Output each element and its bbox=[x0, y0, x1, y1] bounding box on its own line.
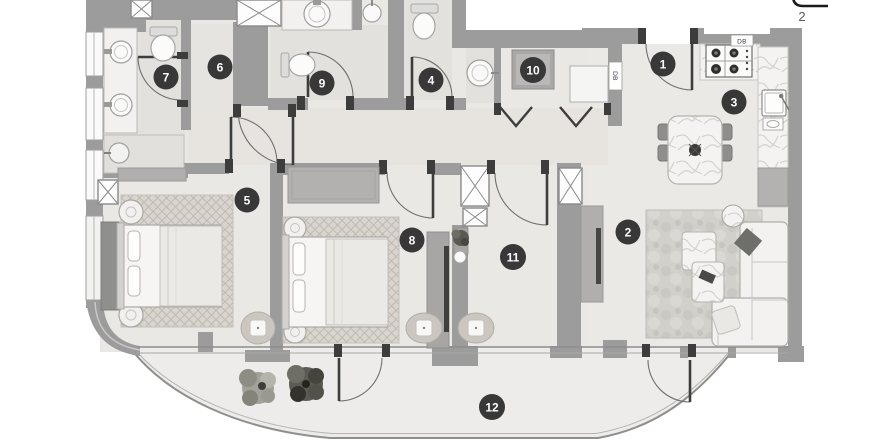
svg-text:1: 1 bbox=[660, 57, 667, 71]
room-badge-11: 11 bbox=[500, 244, 526, 270]
svg-text:3: 3 bbox=[731, 95, 738, 109]
room-badge-9: 9 bbox=[310, 71, 335, 96]
room-badge-7: 7 bbox=[154, 65, 179, 90]
db-label-hall: DB bbox=[611, 71, 618, 81]
kitchen-base-cabinet bbox=[758, 168, 788, 206]
pouf-icon bbox=[406, 313, 442, 343]
decor-bowl bbox=[454, 251, 466, 263]
svg-text:10: 10 bbox=[526, 63, 540, 77]
sink-icon bbox=[304, 0, 330, 27]
room-badge-6: 6 bbox=[208, 55, 233, 80]
toilet-icon bbox=[150, 27, 177, 61]
room-badge-12: 12 bbox=[479, 394, 505, 420]
svg-text:11: 11 bbox=[507, 250, 520, 264]
svg-text:5: 5 bbox=[244, 193, 251, 207]
left-wall-windows bbox=[86, 32, 103, 300]
column-icon bbox=[559, 168, 582, 204]
hall-cabinet bbox=[570, 66, 608, 102]
room-badge-8: 8 bbox=[400, 228, 425, 253]
dresser bbox=[118, 168, 186, 181]
bed-icon bbox=[117, 223, 222, 309]
corner-number: 2 bbox=[798, 9, 805, 24]
toilet-icon bbox=[281, 53, 315, 77]
column-icon bbox=[461, 166, 489, 226]
side-table-icon bbox=[722, 205, 744, 227]
svg-text:12: 12 bbox=[485, 400, 499, 414]
floor-plan-canvas: DB DB 1 2 3 4 5 6 7 bbox=[0, 0, 890, 440]
pouf-icon bbox=[241, 312, 275, 344]
floor-plan: DB DB 1 2 3 4 5 6 7 bbox=[0, 0, 890, 440]
corner-annotation: 2 bbox=[793, 0, 828, 24]
room-badge-3: 3 bbox=[722, 90, 747, 115]
cooktop-icon bbox=[706, 45, 752, 77]
tv-console bbox=[581, 206, 603, 302]
wardrobe bbox=[101, 222, 119, 310]
plant-icon bbox=[239, 369, 276, 406]
svg-text:6: 6 bbox=[217, 60, 224, 74]
wardrobe bbox=[288, 167, 379, 203]
dining-set bbox=[658, 116, 732, 184]
bed-icon bbox=[282, 235, 388, 329]
column-icon bbox=[98, 180, 118, 204]
svg-text:7: 7 bbox=[163, 70, 170, 84]
column-icon bbox=[131, 0, 152, 18]
shower-icon bbox=[104, 135, 184, 173]
pouf-icon bbox=[458, 313, 494, 343]
dining-table-icon bbox=[668, 116, 722, 184]
svg-text:8: 8 bbox=[409, 233, 416, 247]
svg-text:9: 9 bbox=[319, 76, 326, 90]
svg-text:2: 2 bbox=[625, 225, 632, 239]
room-badge-1: 1 bbox=[651, 52, 676, 77]
room-badge-5: 5 bbox=[235, 188, 260, 213]
room-badge-2: 2 bbox=[616, 220, 641, 245]
plant-icon-dark bbox=[287, 365, 324, 402]
cropped-shape bbox=[793, 0, 828, 6]
room-badge-10: 10 bbox=[520, 57, 546, 83]
column-icon bbox=[237, 0, 281, 26]
svg-text:4: 4 bbox=[428, 73, 435, 87]
room-badge-4: 4 bbox=[419, 68, 444, 93]
db-label-kitchen: DB bbox=[737, 39, 747, 46]
